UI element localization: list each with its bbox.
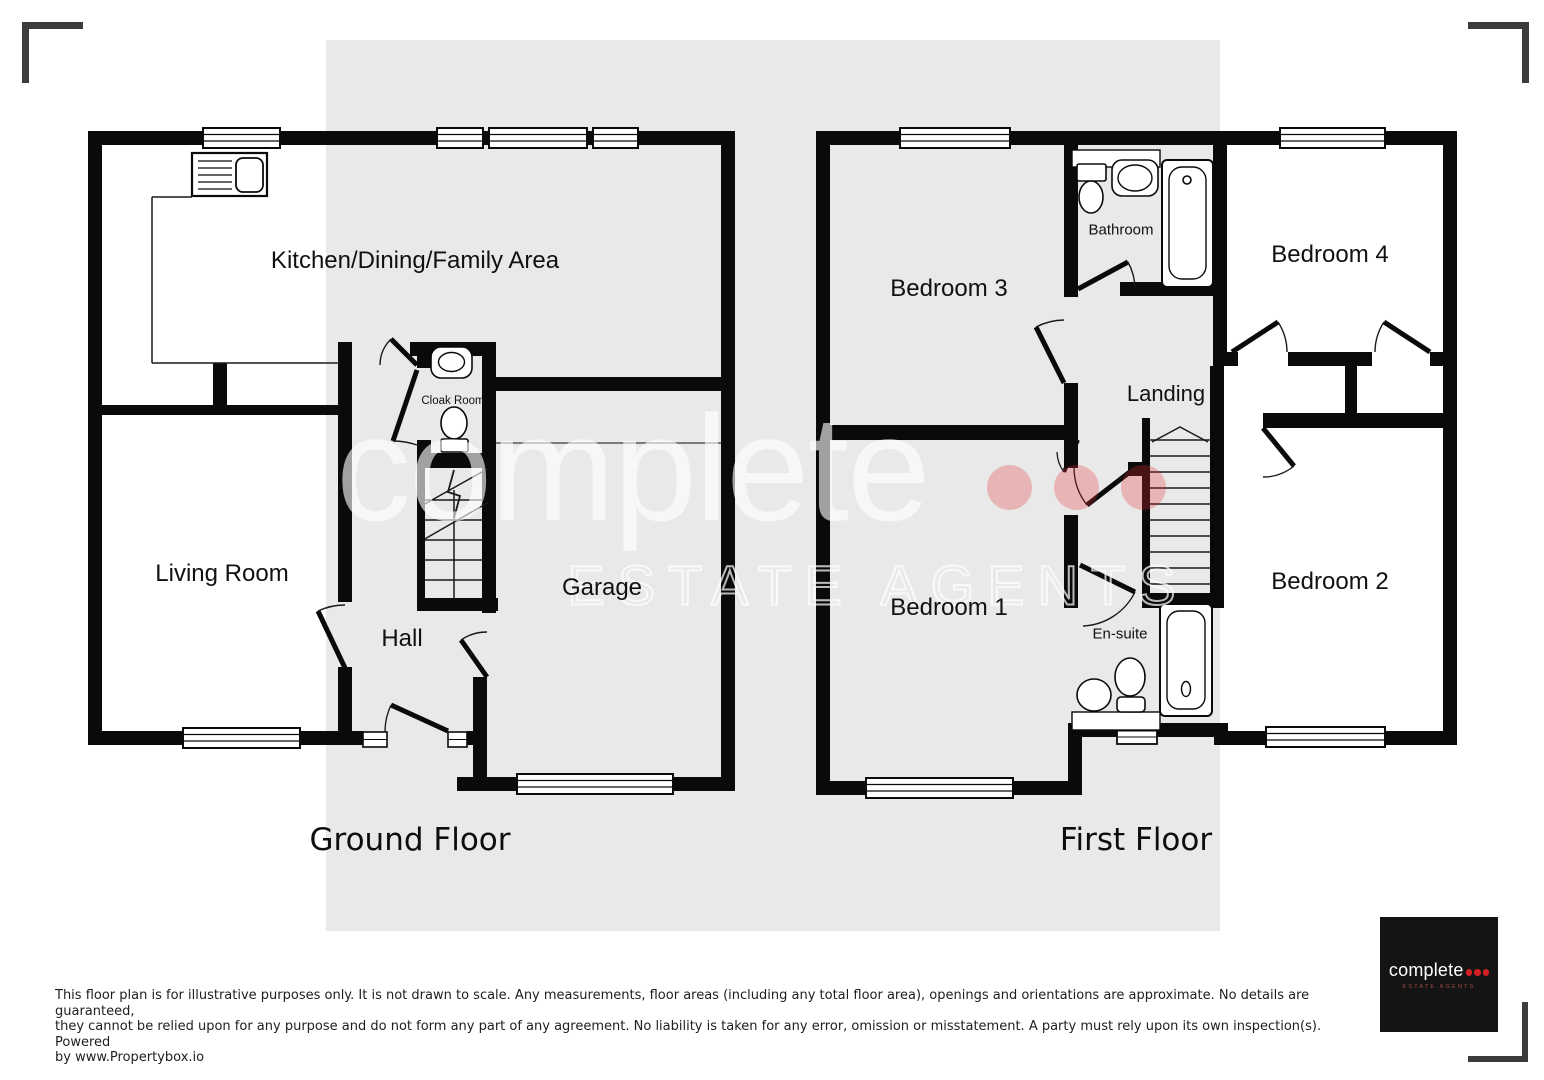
window: [900, 128, 1010, 148]
disclaimer-text: This floor plan is for illustrative purp…: [55, 988, 1345, 1066]
basin-icon: [1112, 160, 1158, 196]
corner-bracket-top-left: [22, 22, 83, 83]
disclaimer-line: This floor plan is for illustrative purp…: [55, 988, 1345, 1019]
bedroom3-label: Bedroom 3: [890, 275, 1007, 303]
watermark-dot-icon: [1121, 465, 1166, 510]
bathroom-label: Bathroom: [1088, 222, 1153, 239]
first-floor-title: First Floor: [1060, 822, 1212, 858]
door-front: [385, 705, 448, 731]
bedroom4-label: Bedroom 4: [1271, 241, 1388, 269]
disclaimer-line: they cannot be relied upon for any purpo…: [55, 1019, 1345, 1050]
kitchen-label: Kitchen/Dining/Family Area: [271, 247, 559, 275]
watermark-dot-icon: [1054, 465, 1099, 510]
door-garage: [461, 632, 487, 677]
ground-floor-title: Ground Floor: [309, 822, 510, 858]
logo-tagline: ESTATE AGENTS: [1402, 984, 1475, 990]
bath-icon: [1162, 160, 1213, 287]
watermark-dot-icon: [987, 465, 1032, 510]
basin-icon: [1077, 679, 1111, 711]
bedroom2-label: Bedroom 2: [1271, 568, 1388, 596]
window: [1280, 128, 1385, 148]
front-door-sidelight: [448, 732, 467, 747]
door-living-room: [318, 605, 345, 668]
window: [437, 128, 483, 148]
garage-door: [517, 774, 673, 794]
shower-bath-icon: [1160, 604, 1212, 716]
living-room-label: Living Room: [155, 560, 288, 588]
watermark-brand: complete: [336, 393, 929, 543]
corner-bracket-top-right: [1468, 22, 1529, 83]
watermark-tagline: ESTATE AGENTS: [567, 553, 1188, 618]
ensuite-vanity: [1072, 712, 1160, 730]
toilet-icon: [1115, 658, 1145, 712]
basin-icon: [431, 347, 472, 378]
window: [593, 128, 638, 148]
window: [489, 128, 587, 148]
kitchen-counter: [152, 197, 338, 363]
front-door-sidelight: [363, 732, 387, 747]
bedroom1-label: Bedroom 1: [890, 594, 1007, 622]
door-bedroom4-cupboard: [1375, 322, 1430, 352]
window: [203, 128, 280, 148]
window: [183, 728, 300, 748]
floorplan-page: complete ESTATE AGENTS Kitchen/Dining/Fa…: [0, 0, 1544, 1080]
ensuite-label: En-suite: [1092, 626, 1147, 643]
door-bedroom4: [1232, 322, 1287, 352]
logo-dots-icon: [1466, 969, 1490, 976]
sink-icon: [192, 153, 267, 196]
door-bedroom2: [1263, 428, 1294, 477]
hall-label: Hall: [381, 625, 422, 653]
landing-label: Landing: [1127, 381, 1205, 407]
cloak-room-label: Cloak Room: [421, 395, 484, 407]
window: [866, 778, 1013, 798]
toilet-icon: [1077, 164, 1106, 213]
door-bedroom3: [1036, 320, 1064, 383]
logo-brand: complete: [1389, 960, 1464, 981]
garage-label: Garage: [562, 574, 642, 602]
disclaimer-line: by www.Propertybox.io: [55, 1050, 1345, 1066]
watermark-dots-icon: [987, 465, 1166, 510]
window: [1266, 727, 1385, 747]
agency-logo: complete ESTATE AGENTS: [1380, 917, 1498, 1032]
